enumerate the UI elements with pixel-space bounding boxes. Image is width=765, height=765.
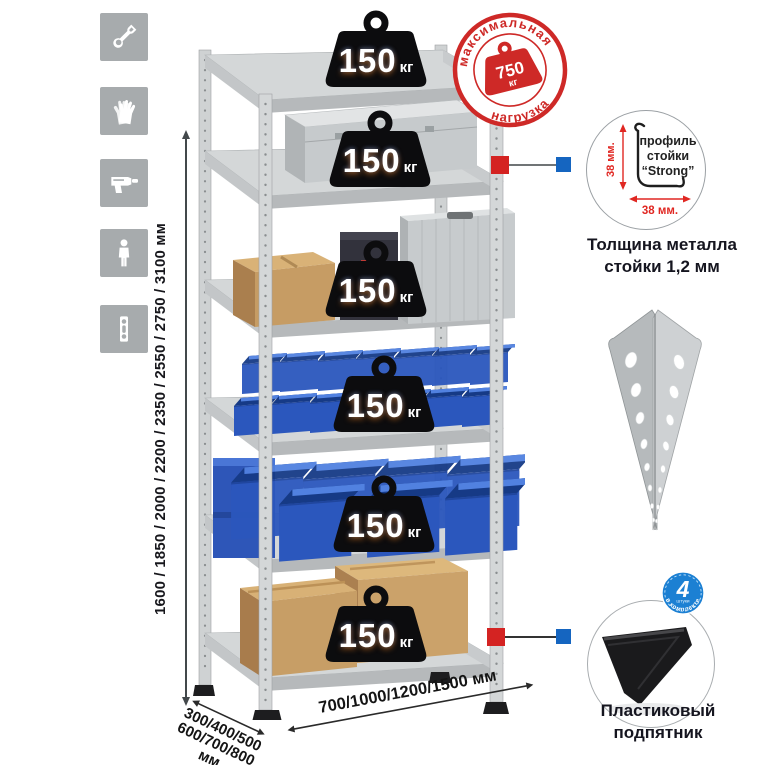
rack-post-glyph [108, 313, 140, 345]
marker-blue-top [556, 157, 571, 172]
profile-label-2: стойки [647, 149, 689, 163]
load-unit: кг [400, 59, 414, 76]
foot-caption-line1: Пластиковый [588, 700, 728, 722]
drill-glyph [108, 167, 140, 199]
thickness-caption-line2: стойки 1,2 мм [572, 256, 752, 278]
marker-blue-bottom [556, 629, 571, 644]
post-profile-detail: 38 мм. 38 мм. профиль стойки “Strong” [586, 110, 706, 230]
included-count-badge: 4 штуки в комплекте [661, 571, 705, 615]
load-value: 150 [347, 507, 405, 544]
profile-label-1: профиль [639, 134, 696, 148]
gloves-icon [100, 87, 148, 135]
person-icon [100, 229, 148, 277]
height-dimension-label: 1600 / 1850 / 2000 / 2200 / 2350 / 2550 … [152, 136, 169, 702]
load-unit: кг [400, 634, 414, 651]
badge-value: 4 [676, 576, 690, 602]
shelf-load-badge: 150кг [314, 110, 446, 190]
load-value: 150 [343, 142, 401, 179]
connector-line-bottom [504, 636, 558, 638]
wrench-glyph [108, 21, 140, 53]
marker-red-top [491, 156, 509, 174]
drill-icon [100, 159, 148, 207]
marker-red-bottom [487, 628, 505, 646]
load-value: 150 [339, 272, 397, 309]
thickness-caption: Толщина металла стойки 1,2 мм [572, 234, 752, 278]
profile-section-drawing: 38 мм. 38 мм. профиль стойки “Strong” [587, 111, 705, 229]
shelf-load-badge: 150кг [318, 475, 450, 555]
rack-post-icon [100, 305, 148, 353]
thickness-caption-line1: Толщина металла [572, 234, 752, 256]
gloves-glyph [108, 95, 140, 127]
connector-line-top [508, 164, 558, 166]
shelf-load-badge: 150кг [310, 585, 442, 665]
load-value: 150 [339, 617, 397, 654]
shelving-product-infographic: 1600 / 1850 / 2000 / 2200 / 2350 / 2550 … [0, 0, 765, 765]
badge-graphic: 4 штуки в комплекте [661, 571, 705, 615]
angle-post-image [600, 298, 710, 543]
load-value: 150 [347, 387, 405, 424]
wrench-icon [100, 13, 148, 61]
foot-caption: Пластиковый подпятник [588, 700, 728, 744]
load-unit: кг [408, 404, 422, 421]
load-unit: кг [400, 289, 414, 306]
shelf-load-badge: 150кг [318, 355, 450, 435]
badge-unit: штуки [676, 600, 690, 605]
load-unit: кг [408, 524, 422, 541]
profile-horizontal-dim: 38 мм. [642, 205, 678, 217]
shelf-load-badge: 150кг [310, 10, 442, 90]
profile-vertical-dim: 38 мм. [605, 142, 617, 177]
person-glyph [108, 237, 140, 269]
foot-caption-line2: подпятник [588, 722, 728, 744]
shelf-load-badge: 150кг [310, 240, 442, 320]
load-unit: кг [404, 159, 418, 176]
load-value: 150 [339, 42, 397, 79]
profile-label-3: “Strong” [642, 164, 695, 178]
